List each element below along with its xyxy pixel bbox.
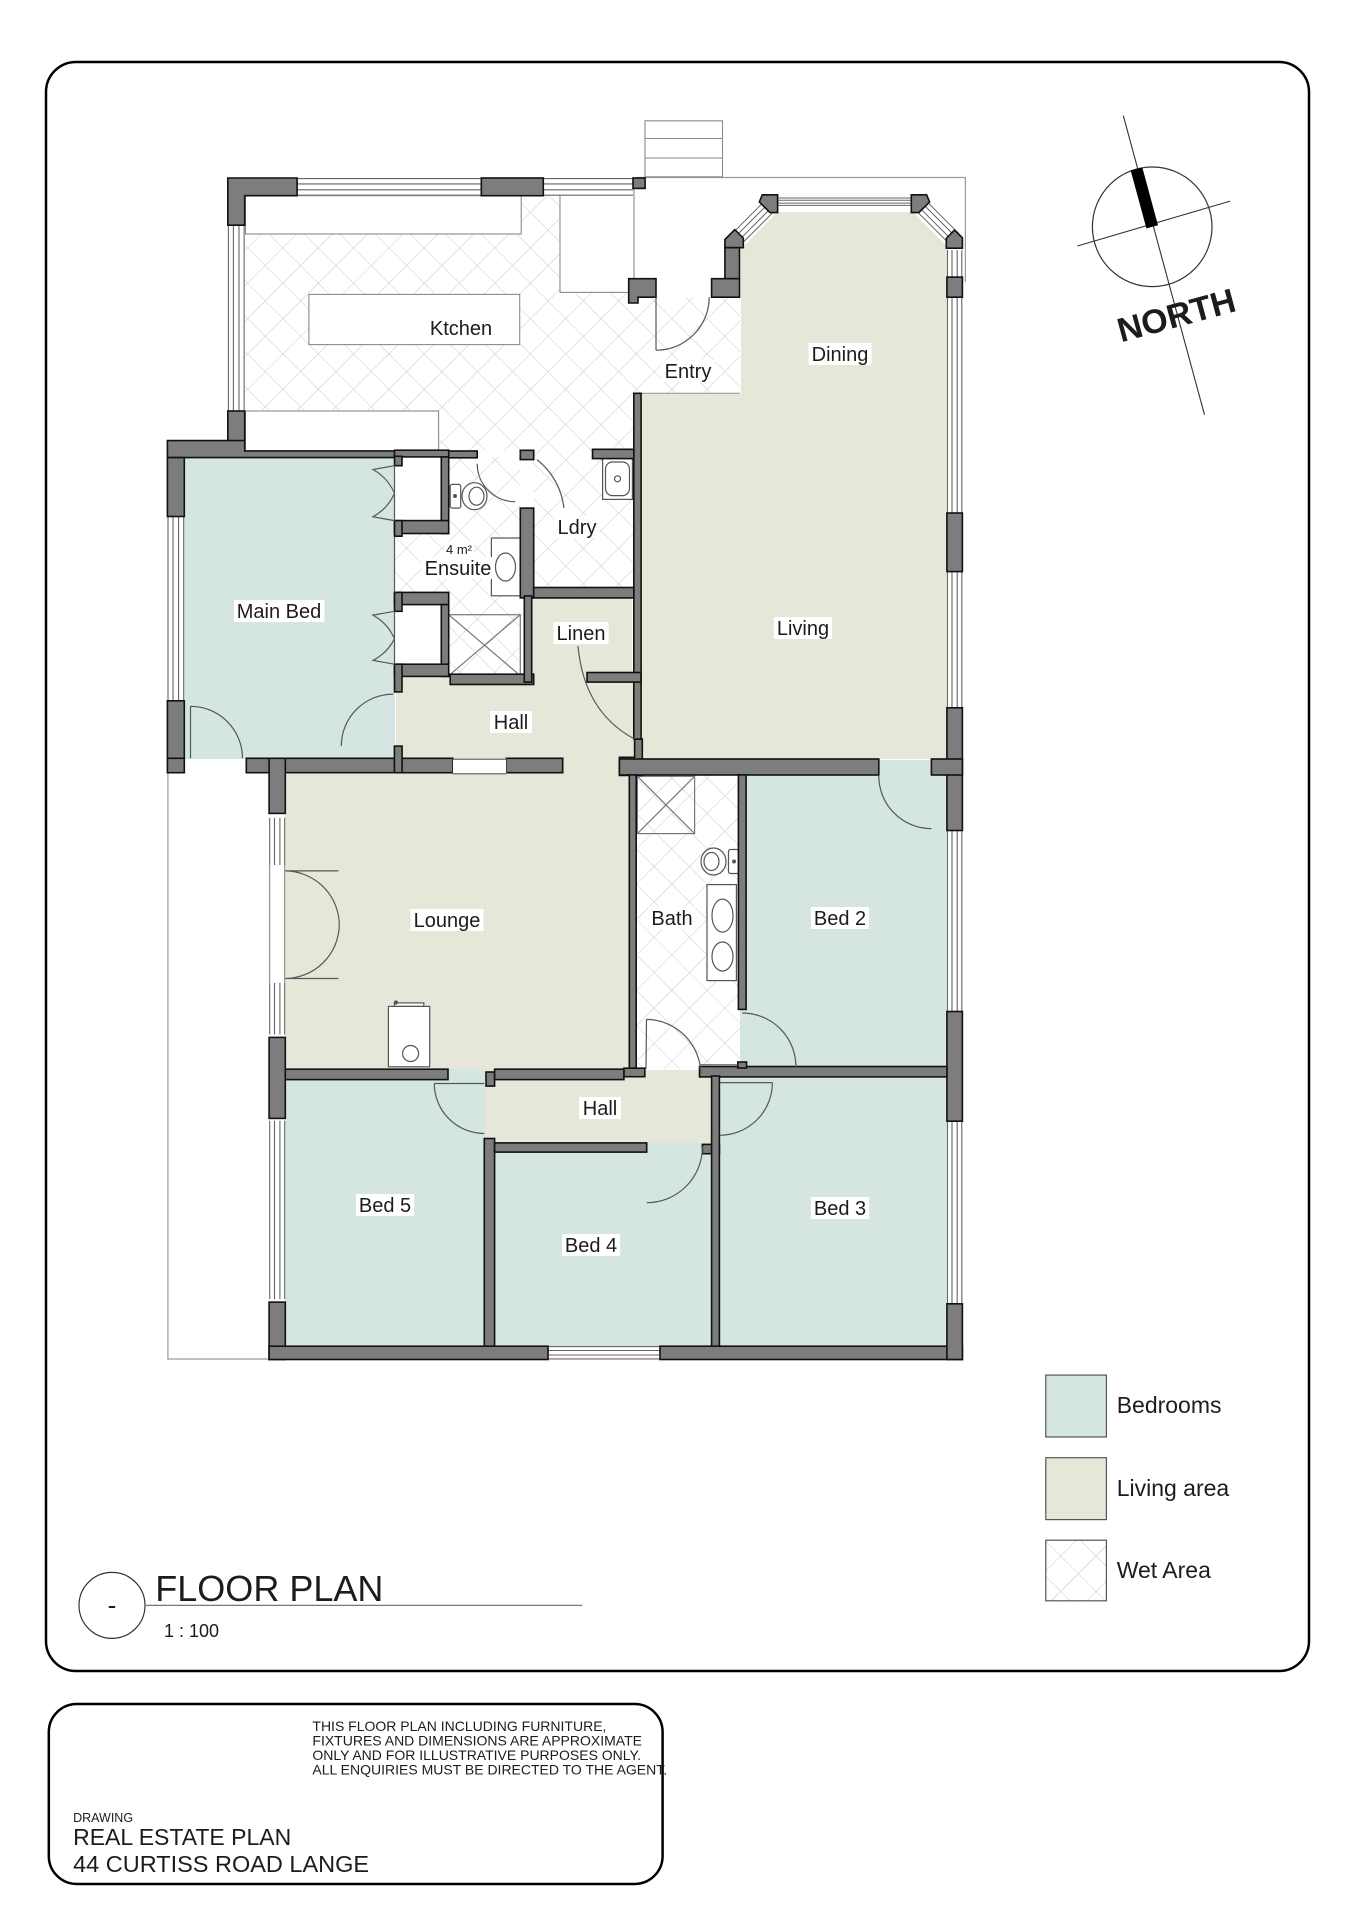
svg-text:Ensuite: Ensuite: [425, 558, 492, 580]
svg-text:Hall: Hall: [494, 712, 528, 734]
svg-text:4 m²: 4 m²: [446, 542, 473, 557]
svg-text:Bath: Bath: [651, 908, 692, 930]
svg-text:Bed 5: Bed 5: [359, 1195, 411, 1217]
svg-text:ALL ENQUIRIES MUST BE DIRECTED: ALL ENQUIRIES MUST BE DIRECTED TO THE AG…: [312, 1762, 667, 1778]
svg-text:Living area: Living area: [1117, 1475, 1230, 1501]
svg-text:Lounge: Lounge: [414, 910, 481, 932]
svg-text:Linen: Linen: [557, 623, 606, 645]
svg-text:FLOOR PLAN: FLOOR PLAN: [155, 1568, 383, 1609]
svg-text:-: -: [108, 1590, 117, 1620]
svg-text:44 CURTISS ROAD LANGE: 44 CURTISS ROAD LANGE: [73, 1851, 369, 1877]
svg-text:Hall: Hall: [583, 1098, 617, 1120]
svg-text:DRAWING: DRAWING: [73, 1811, 133, 1825]
svg-text:Dining: Dining: [812, 344, 869, 366]
svg-text:REAL ESTATE PLAN: REAL ESTATE PLAN: [73, 1824, 291, 1850]
svg-text:Bed 2: Bed 2: [814, 908, 866, 930]
svg-text:Bedrooms: Bedrooms: [1117, 1392, 1222, 1418]
svg-text:Ktchen: Ktchen: [430, 318, 492, 340]
svg-text:Main Bed: Main Bed: [237, 601, 322, 623]
svg-text:Wet Area: Wet Area: [1117, 1557, 1211, 1583]
svg-text:Bed 4: Bed 4: [565, 1235, 617, 1257]
svg-text:Living: Living: [777, 618, 829, 640]
svg-text:Ldry: Ldry: [558, 517, 597, 539]
svg-text:1 : 100: 1 : 100: [164, 1621, 219, 1641]
svg-text:Bed 3: Bed 3: [814, 1198, 866, 1220]
svg-text:Entry: Entry: [665, 361, 712, 383]
